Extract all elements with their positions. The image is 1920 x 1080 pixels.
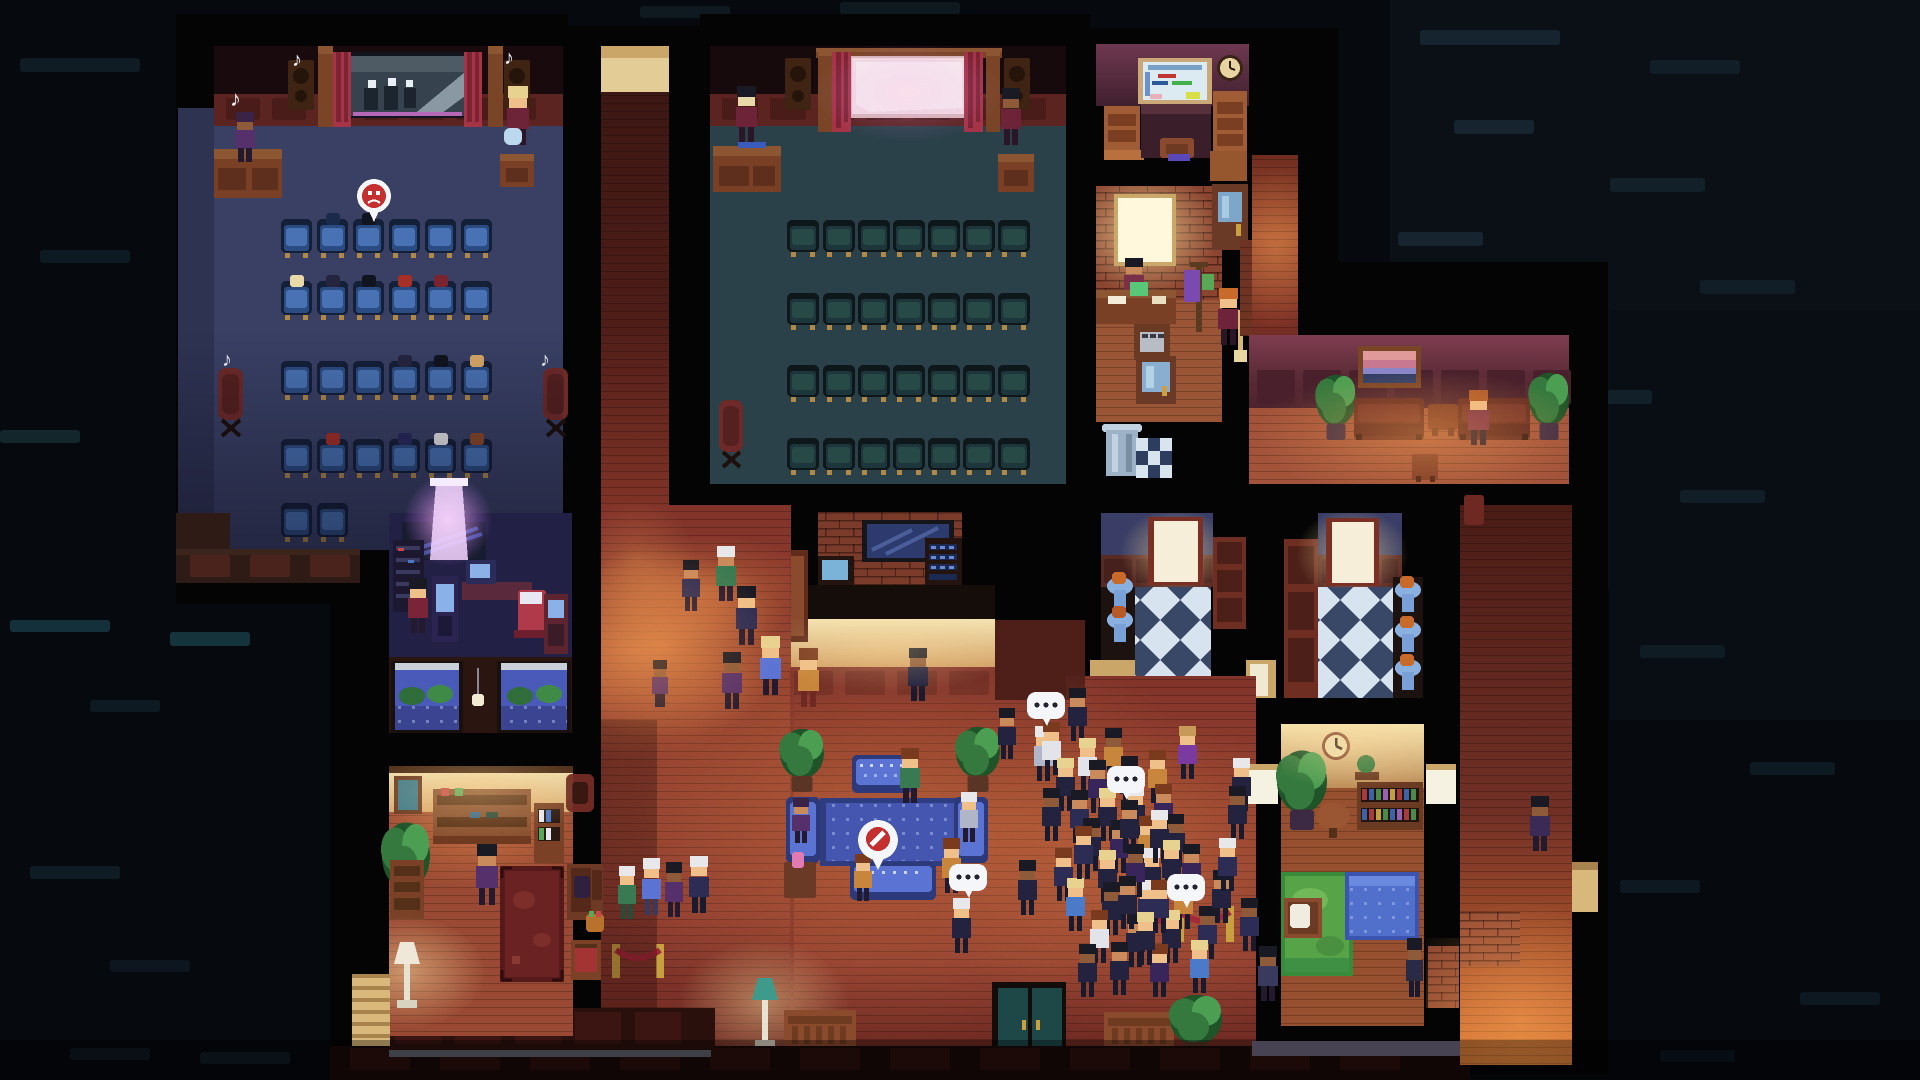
svg-text:♪: ♪ [292,49,302,71]
svg-text:♪: ♪ [504,47,514,69]
svg-text:♪: ♪ [230,86,241,111]
